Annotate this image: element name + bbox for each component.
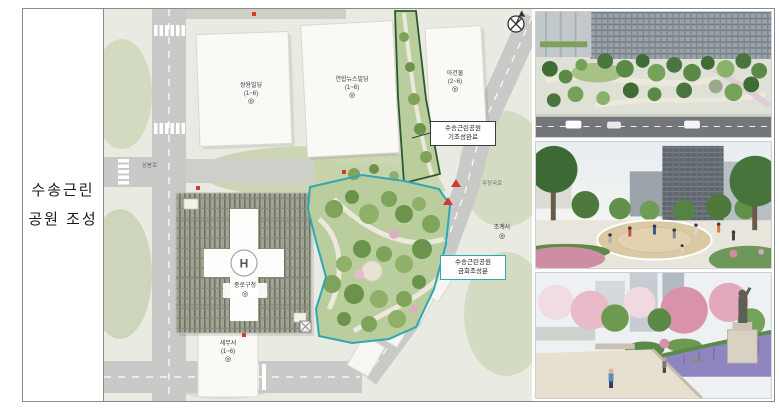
- callout-park-completed: 수송근린공원 기조성완료: [430, 121, 496, 146]
- building-marker-icon: ◎: [426, 86, 484, 93]
- helipad-letter: H: [240, 257, 249, 271]
- label-jogyesa: 조계사 ◎: [478, 225, 526, 240]
- building-marker-icon: ◎: [202, 356, 254, 363]
- label-gu-office: 종로구청 ◎: [223, 283, 267, 298]
- utility-box: [300, 321, 311, 332]
- building-marker-icon: ◎: [478, 233, 526, 240]
- road-label-sambong: 삼봉로: [142, 161, 157, 169]
- building-marker-icon: ◎: [224, 291, 266, 298]
- row-title-line2: 공원 조성: [28, 205, 97, 234]
- site-plan-map: H: [104, 9, 532, 401]
- photo-aerial-rendering: [535, 11, 772, 138]
- row-title-line1: 수송근린: [31, 176, 94, 205]
- callout-park-current: 수송근린공원 금회조성분: [440, 255, 506, 280]
- north-compass-icon: [508, 11, 525, 32]
- label-building-ssangyong: 쌍용빌딩 (1~6) ◎: [219, 83, 283, 105]
- road-label-ujeongguk: 우정국로: [482, 179, 502, 187]
- building-marker-icon: ◎: [219, 98, 283, 105]
- figure-table: 수송근린 공원 조성: [22, 8, 775, 402]
- label-building-yonhap: 연합뉴스빌딩 (1~6) ◎: [318, 77, 386, 99]
- row-title: 수송근린 공원 조성: [23, 9, 104, 401]
- photo-plaza-rendering: [535, 141, 772, 268]
- label-tax-office: 세무서 (1~6) ◎: [202, 341, 254, 363]
- rendering-photos: [532, 9, 774, 401]
- figure-content: H: [104, 9, 774, 401]
- site-plan-drawing: H: [104, 9, 532, 401]
- current-phase-park: [308, 164, 450, 343]
- building-marker-icon: ◎: [318, 92, 386, 99]
- central-building: H: [176, 193, 314, 336]
- photo-path-statue-rendering: [535, 272, 772, 399]
- label-building-a: 아건물 (2~6) ◎: [426, 71, 484, 93]
